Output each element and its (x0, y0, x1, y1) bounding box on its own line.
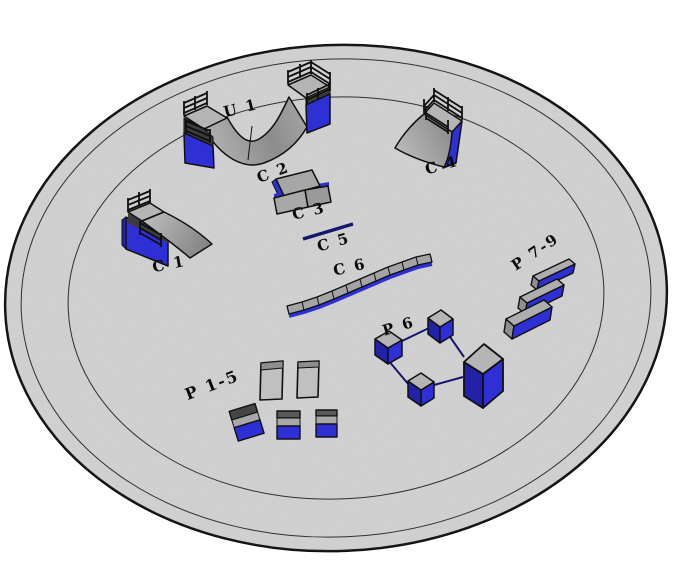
p1-5-tall-box-2 (297, 361, 319, 398)
p1-5-cube-3-blue (316, 424, 337, 437)
p1-5-tall-box-2-top-band (298, 361, 319, 368)
p1-5-cube-3-mid (316, 416, 337, 424)
p1-5-cube-2-mid (277, 418, 300, 426)
p1-5-tall-box-1-top-band (261, 361, 283, 370)
p1-5-cube-2 (277, 411, 300, 439)
p1-5-cube-2-blue (277, 426, 300, 439)
p1-5-tall-box-1 (260, 361, 283, 400)
p1-5-cube-2-top (277, 411, 300, 418)
p1-5-cube-3-top (316, 410, 337, 416)
p1-5-cube-3 (316, 410, 337, 437)
c1-base-blue-side (122, 217, 126, 249)
skatepark-3d-view: U 1 C 1 C 2 C 3 C 4 C 5 C 6 (0, 0, 680, 579)
scene-canvas: U 1 C 1 C 2 C 3 C 4 C 5 C 6 (0, 0, 680, 579)
